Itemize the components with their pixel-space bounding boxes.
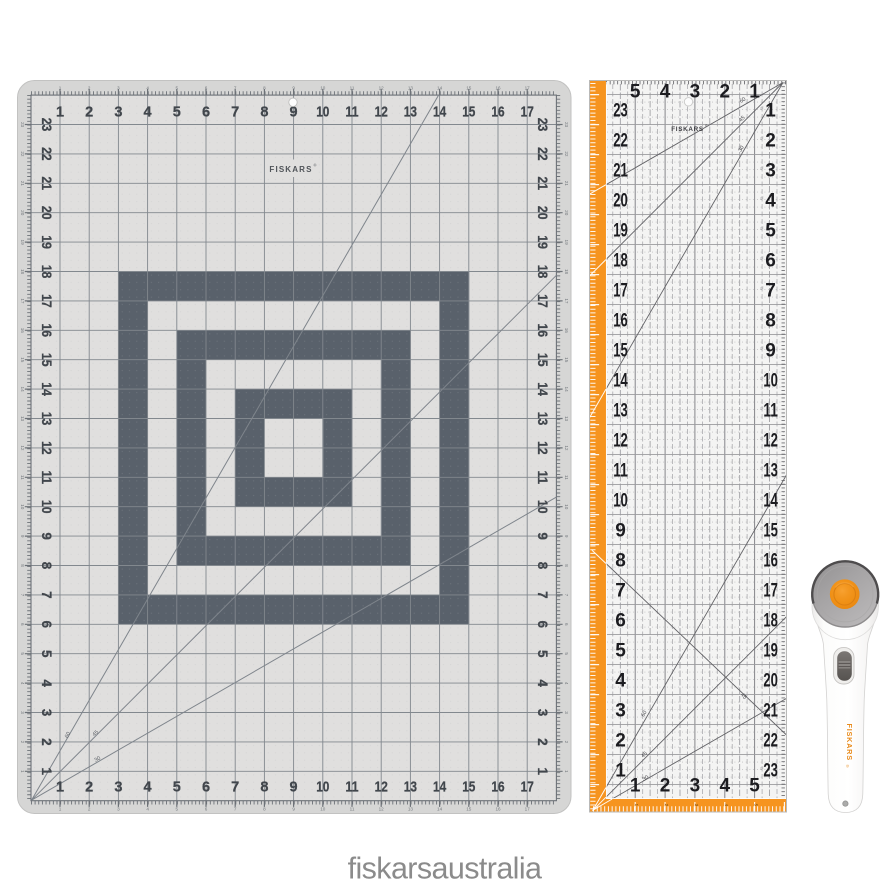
svg-text:®: ® [314, 163, 317, 168]
svg-text:4: 4 [20, 682, 25, 685]
svg-text:8: 8 [260, 105, 268, 121]
svg-text:20: 20 [613, 190, 628, 211]
svg-text:18: 18 [20, 269, 25, 275]
svg-text:1: 1 [56, 105, 64, 121]
svg-text:8: 8 [263, 85, 266, 90]
svg-text:15: 15 [39, 353, 54, 367]
svg-text:7: 7 [564, 594, 569, 597]
svg-text:7: 7 [39, 591, 54, 599]
svg-text:7: 7 [234, 85, 237, 90]
svg-text:½: ½ [759, 736, 764, 740]
svg-text:2: 2 [765, 130, 776, 151]
svg-text:23: 23 [535, 118, 550, 132]
svg-text:2: 2 [85, 105, 93, 121]
svg-text:21: 21 [39, 177, 54, 191]
svg-text:22: 22 [763, 730, 778, 751]
svg-text:8: 8 [615, 550, 626, 571]
svg-text:9: 9 [564, 535, 569, 538]
svg-text:18: 18 [39, 265, 54, 279]
svg-text:6: 6 [765, 250, 776, 271]
svg-text:20: 20 [535, 206, 550, 220]
svg-text:½: ½ [759, 496, 764, 500]
svg-text:12: 12 [379, 807, 385, 812]
svg-text:4: 4 [144, 105, 152, 121]
svg-text:9: 9 [292, 807, 295, 812]
svg-text:7: 7 [765, 280, 776, 301]
svg-text:23: 23 [763, 760, 778, 781]
svg-text:3: 3 [535, 709, 550, 717]
svg-text:9: 9 [765, 340, 776, 361]
svg-text:9: 9 [292, 85, 295, 90]
svg-text:16: 16 [613, 310, 628, 331]
svg-text:3: 3 [690, 776, 701, 797]
svg-text:16: 16 [491, 105, 504, 121]
svg-text:17: 17 [39, 294, 54, 308]
svg-text:½: ½ [759, 166, 764, 170]
svg-text:18: 18 [564, 269, 569, 275]
svg-text:10: 10 [320, 807, 326, 812]
svg-text:5: 5 [173, 105, 181, 121]
svg-text:21: 21 [20, 181, 25, 187]
svg-text:2: 2 [20, 741, 25, 744]
svg-text:22: 22 [20, 151, 25, 157]
svg-text:2: 2 [615, 730, 626, 751]
svg-text:½: ½ [759, 436, 764, 440]
svg-text:15: 15 [462, 105, 475, 121]
svg-text:11: 11 [345, 105, 358, 121]
svg-text:½: ½ [759, 586, 764, 590]
svg-text:½: ½ [759, 346, 764, 350]
svg-text:19: 19 [535, 235, 550, 249]
svg-text:20: 20 [763, 670, 778, 691]
svg-text:4: 4 [144, 780, 152, 796]
svg-text:1: 1 [535, 768, 550, 776]
svg-text:½: ½ [759, 106, 764, 110]
svg-text:15: 15 [462, 780, 475, 796]
svg-text:½: ½ [759, 706, 764, 710]
svg-text:9: 9 [20, 535, 25, 538]
svg-text:23: 23 [613, 100, 628, 121]
svg-text:1: 1 [20, 770, 25, 773]
svg-text:15: 15 [763, 520, 778, 541]
svg-text:1: 1 [765, 100, 776, 121]
svg-text:14: 14 [564, 387, 569, 393]
svg-text:12: 12 [535, 441, 550, 455]
svg-text:½: ½ [759, 676, 764, 680]
svg-text:12: 12 [375, 780, 388, 796]
svg-text:7: 7 [535, 591, 550, 599]
svg-text:2: 2 [535, 738, 550, 746]
svg-text:6: 6 [535, 621, 550, 629]
svg-text:19: 19 [763, 640, 778, 661]
svg-text:20: 20 [20, 210, 25, 216]
svg-text:½: ½ [759, 256, 764, 260]
svg-text:6: 6 [39, 621, 54, 629]
svg-text:4: 4 [615, 670, 626, 691]
svg-text:3: 3 [564, 711, 569, 714]
svg-text:7: 7 [231, 780, 239, 796]
svg-text:7: 7 [234, 807, 237, 812]
svg-text:FISKARS: FISKARS [671, 126, 704, 133]
svg-text:22: 22 [535, 147, 550, 161]
svg-text:4: 4 [535, 679, 550, 687]
svg-text:16: 16 [20, 328, 25, 334]
svg-text:8: 8 [765, 310, 776, 331]
svg-text:8: 8 [260, 780, 268, 796]
svg-text:4: 4 [765, 190, 776, 211]
svg-text:9: 9 [290, 105, 298, 121]
svg-text:21: 21 [613, 160, 628, 181]
svg-text:3: 3 [615, 700, 626, 721]
svg-text:½: ½ [759, 226, 764, 230]
svg-text:1: 1 [564, 770, 569, 773]
svg-text:12: 12 [39, 441, 54, 455]
svg-text:7: 7 [615, 580, 626, 601]
svg-text:8: 8 [535, 562, 550, 570]
svg-text:5: 5 [20, 652, 25, 655]
svg-text:21: 21 [763, 700, 778, 721]
svg-text:16: 16 [564, 328, 569, 334]
svg-text:3: 3 [117, 85, 120, 90]
svg-text:3: 3 [114, 780, 122, 796]
svg-text:12: 12 [375, 105, 388, 121]
svg-text:7: 7 [231, 105, 239, 121]
svg-text:9: 9 [39, 532, 54, 540]
svg-text:½: ½ [759, 526, 764, 530]
svg-text:½: ½ [759, 406, 764, 410]
svg-text:23: 23 [39, 118, 54, 132]
svg-text:2: 2 [88, 85, 91, 90]
svg-text:½: ½ [759, 376, 764, 380]
svg-text:23: 23 [564, 122, 569, 128]
svg-text:2: 2 [39, 738, 54, 746]
svg-text:5: 5 [173, 780, 181, 796]
svg-text:14: 14 [763, 490, 778, 511]
svg-text:2: 2 [720, 82, 731, 103]
svg-text:8: 8 [564, 564, 569, 567]
svg-text:15: 15 [564, 357, 569, 363]
svg-text:14: 14 [613, 370, 628, 391]
svg-text:18: 18 [535, 265, 550, 279]
svg-text:½: ½ [759, 556, 764, 560]
svg-text:17: 17 [521, 780, 534, 796]
svg-text:19: 19 [20, 240, 25, 246]
svg-text:1: 1 [630, 776, 641, 797]
svg-text:17: 17 [525, 85, 531, 90]
svg-text:5: 5 [535, 650, 550, 658]
svg-text:10: 10 [763, 370, 778, 391]
svg-text:14: 14 [437, 807, 443, 812]
svg-text:16: 16 [535, 324, 550, 338]
svg-text:½: ½ [759, 316, 764, 320]
svg-text:4: 4 [564, 682, 569, 685]
svg-text:®: ® [845, 765, 850, 768]
svg-text:12: 12 [564, 445, 569, 451]
svg-text:17: 17 [763, 580, 778, 601]
svg-text:6: 6 [205, 85, 208, 90]
svg-text:15: 15 [20, 357, 25, 363]
svg-text:4: 4 [660, 82, 671, 103]
svg-text:23: 23 [20, 122, 25, 128]
svg-text:6: 6 [564, 623, 569, 626]
svg-text:FISKARS: FISKARS [845, 724, 854, 761]
svg-text:1: 1 [56, 780, 64, 796]
svg-text:14: 14 [535, 382, 550, 396]
svg-text:18: 18 [613, 250, 628, 271]
svg-text:10: 10 [316, 780, 329, 796]
svg-text:10: 10 [320, 85, 326, 90]
svg-text:6: 6 [202, 780, 210, 796]
svg-text:13: 13 [564, 416, 569, 422]
svg-text:7: 7 [20, 594, 25, 597]
svg-text:2: 2 [660, 776, 671, 797]
svg-text:21: 21 [564, 181, 569, 187]
svg-text:2: 2 [564, 741, 569, 744]
svg-text:13: 13 [404, 780, 417, 796]
svg-text:5: 5 [39, 650, 54, 658]
svg-text:15: 15 [613, 340, 628, 361]
svg-text:14: 14 [433, 780, 446, 796]
svg-text:11: 11 [345, 780, 358, 796]
svg-text:16: 16 [495, 807, 501, 812]
svg-text:16: 16 [763, 550, 778, 571]
svg-text:5: 5 [765, 220, 776, 241]
svg-text:1: 1 [749, 82, 760, 103]
svg-text:3: 3 [114, 105, 122, 121]
svg-text:9: 9 [615, 520, 626, 541]
svg-text:13: 13 [20, 416, 25, 422]
svg-text:17: 17 [521, 105, 534, 121]
svg-text:22: 22 [613, 130, 628, 151]
svg-text:11: 11 [350, 85, 355, 90]
svg-text:6: 6 [205, 807, 208, 812]
svg-text:22: 22 [564, 151, 569, 157]
svg-text:12: 12 [613, 430, 628, 451]
svg-text:9: 9 [535, 532, 550, 540]
svg-text:1: 1 [615, 760, 626, 781]
svg-text:½: ½ [759, 646, 764, 650]
svg-text:3: 3 [39, 709, 54, 717]
svg-text:14: 14 [39, 382, 54, 396]
svg-text:11: 11 [613, 460, 628, 481]
svg-text:14: 14 [437, 85, 443, 90]
svg-text:11: 11 [350, 807, 355, 812]
svg-text:½: ½ [759, 286, 764, 290]
svg-text:½: ½ [759, 766, 764, 770]
svg-text:1: 1 [59, 807, 62, 812]
svg-text:19: 19 [613, 220, 628, 241]
svg-text:2: 2 [85, 780, 93, 796]
svg-text:5: 5 [749, 776, 760, 797]
svg-text:13: 13 [763, 460, 778, 481]
svg-text:6: 6 [202, 105, 210, 121]
svg-text:12: 12 [20, 445, 25, 451]
svg-text:6: 6 [615, 610, 626, 631]
svg-text:1: 1 [39, 768, 54, 776]
svg-text:18: 18 [763, 610, 778, 631]
svg-text:10: 10 [316, 105, 329, 121]
svg-text:17: 17 [613, 280, 628, 301]
svg-text:13: 13 [408, 85, 414, 90]
svg-text:8: 8 [263, 807, 266, 812]
svg-text:10: 10 [564, 504, 569, 510]
svg-text:FISKARS: FISKARS [269, 165, 312, 174]
svg-text:4: 4 [39, 679, 54, 687]
svg-text:10: 10 [39, 500, 54, 514]
svg-text:5: 5 [176, 807, 179, 812]
svg-text:11: 11 [20, 475, 25, 480]
svg-text:20: 20 [564, 210, 569, 216]
svg-text:8: 8 [20, 564, 25, 567]
svg-text:3: 3 [765, 160, 776, 181]
svg-text:½: ½ [759, 196, 764, 200]
svg-text:11: 11 [535, 471, 550, 485]
svg-text:19: 19 [564, 240, 569, 246]
svg-text:10: 10 [535, 500, 550, 514]
svg-text:16: 16 [495, 85, 501, 90]
svg-text:1: 1 [59, 85, 62, 90]
svg-text:19: 19 [39, 235, 54, 249]
svg-text:2: 2 [88, 807, 91, 812]
svg-text:20: 20 [39, 206, 54, 220]
svg-text:17: 17 [525, 807, 531, 812]
svg-text:13: 13 [613, 400, 628, 421]
svg-text:15: 15 [466, 807, 472, 812]
svg-text:fiskarsaustralia: fiskarsaustralia [348, 852, 542, 886]
svg-text:17: 17 [20, 298, 25, 304]
svg-text:4: 4 [720, 776, 731, 797]
svg-text:9: 9 [290, 780, 298, 796]
svg-text:15: 15 [535, 353, 550, 367]
svg-text:½: ½ [759, 136, 764, 140]
svg-text:5: 5 [564, 652, 569, 655]
svg-text:13: 13 [39, 412, 54, 426]
svg-text:21: 21 [535, 177, 550, 191]
svg-text:5: 5 [630, 82, 641, 103]
svg-text:½: ½ [759, 616, 764, 620]
svg-text:15: 15 [466, 85, 472, 90]
svg-text:13: 13 [408, 807, 414, 812]
svg-text:14: 14 [433, 105, 446, 121]
svg-text:4: 4 [146, 85, 149, 90]
svg-text:16: 16 [491, 780, 504, 796]
svg-text:13: 13 [404, 105, 417, 121]
svg-text:13: 13 [535, 412, 550, 426]
svg-text:22: 22 [39, 147, 54, 161]
svg-text:10: 10 [613, 490, 628, 511]
svg-text:17: 17 [535, 294, 550, 308]
svg-text:10: 10 [20, 504, 25, 510]
svg-text:11: 11 [39, 471, 54, 485]
svg-text:½: ½ [759, 466, 764, 470]
svg-text:6: 6 [20, 623, 25, 626]
svg-text:5: 5 [176, 85, 179, 90]
svg-text:12: 12 [763, 430, 778, 451]
svg-text:16: 16 [39, 324, 54, 338]
svg-text:11: 11 [564, 475, 569, 480]
svg-text:8: 8 [39, 562, 54, 570]
svg-text:17: 17 [564, 298, 569, 304]
svg-text:12: 12 [379, 85, 385, 90]
svg-text:3: 3 [117, 807, 120, 812]
svg-text:5: 5 [615, 640, 626, 661]
svg-text:3: 3 [20, 711, 25, 714]
svg-text:4: 4 [146, 807, 149, 812]
svg-text:14: 14 [20, 387, 25, 393]
svg-text:11: 11 [763, 400, 778, 421]
